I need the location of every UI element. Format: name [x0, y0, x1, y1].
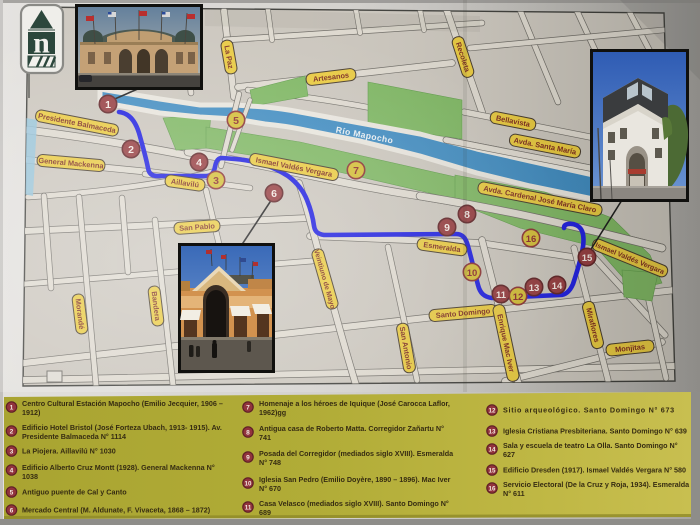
svg-text:5: 5	[10, 490, 14, 497]
svg-text:2: 2	[10, 429, 14, 436]
svg-text:Antiguo puente de Cal y Canto: Antiguo puente de Cal y Canto	[22, 488, 127, 497]
svg-text:La Piojera. Aillavilú N° 1030: La Piojera. Aillavilú N° 1030	[22, 447, 116, 456]
svg-text:Antigua casa de Roberto Matta.: Antigua casa de Roberto Matta. Corregido…	[259, 424, 444, 433]
svg-text:Sala y escuela de teatro La Ol: Sala y escuela de teatro La Olla. Santo …	[503, 441, 678, 450]
svg-text:6: 6	[10, 508, 14, 515]
svg-text:Centro Cultural Estación Mapoc: Centro Cultural Estación Mapocho (Emilio…	[22, 399, 223, 408]
svg-text:7: 7	[246, 405, 250, 412]
svg-text:16: 16	[489, 486, 496, 493]
svg-text:Homenaje a los héroes de Iquiq: Homenaje a los héroes de Iquique (José C…	[259, 399, 450, 408]
svg-text:15: 15	[489, 468, 496, 475]
svg-text:Servicio Electoral (De la Cruz: Servicio Electoral (De la Cruz y Roja, 1…	[503, 480, 690, 489]
svg-text:Edificio Dresden (1917). Ismae: Edificio Dresden (1917). Ismael Valdés V…	[503, 466, 686, 475]
svg-text:N° 748: N° 748	[259, 458, 281, 467]
svg-text:4: 4	[10, 468, 14, 475]
svg-text:1962)gg: 1962)gg	[259, 408, 286, 417]
svg-text:8: 8	[246, 430, 250, 437]
svg-text:Mercado Central (M. Aldunate,: Mercado Central (M. Aldunate, F. Vivacet…	[22, 506, 211, 515]
svg-text:N° 611: N° 611	[503, 489, 525, 498]
svg-text:Edificio Alberto Cruz Montt (1: Edificio Alberto Cruz Montt (1928). Gene…	[22, 463, 215, 472]
svg-text:Sitio arqueológico. Santo Domi: Sitio arqueológico. Santo Domingo N° 673	[503, 406, 675, 415]
svg-text:12: 12	[489, 408, 496, 415]
svg-text:N° 670: N° 670	[259, 484, 281, 493]
svg-text:10: 10	[245, 481, 252, 488]
svg-text:741: 741	[259, 433, 271, 442]
svg-text:11: 11	[245, 505, 252, 512]
svg-text:Posada del Corregidor (mediado: Posada del Corregidor (mediados siglo XV…	[259, 449, 454, 458]
svg-text:14: 14	[489, 447, 496, 454]
svg-text:Iglesia Cristiana Presbiterian: Iglesia Cristiana Presbiteriana. Santo D…	[503, 427, 687, 436]
svg-text:9: 9	[246, 455, 250, 462]
svg-text:Casa Velasco (mediados siglo X: Casa Velasco (mediados siglo XVIII). San…	[259, 499, 449, 508]
svg-text:Edificio Hotel Bristol (José F: Edificio Hotel Bristol (José Forteza Uba…	[22, 423, 222, 432]
svg-text:1912): 1912)	[22, 408, 41, 417]
svg-text:13: 13	[489, 429, 496, 436]
svg-text:627: 627	[503, 450, 515, 459]
svg-text:Presidente Balmaceda N° 1114: Presidente Balmaceda N° 1114	[22, 432, 126, 441]
svg-text:1038: 1038	[22, 472, 38, 481]
svg-text:689: 689	[259, 508, 271, 517]
svg-text:3: 3	[10, 449, 14, 456]
svg-text:Iglesia San Pedro (Emilio Doyè: Iglesia San Pedro (Emilio Doyère, 1890 –…	[259, 475, 451, 484]
svg-text:1: 1	[10, 405, 14, 412]
svg-text:n: n	[33, 27, 50, 60]
